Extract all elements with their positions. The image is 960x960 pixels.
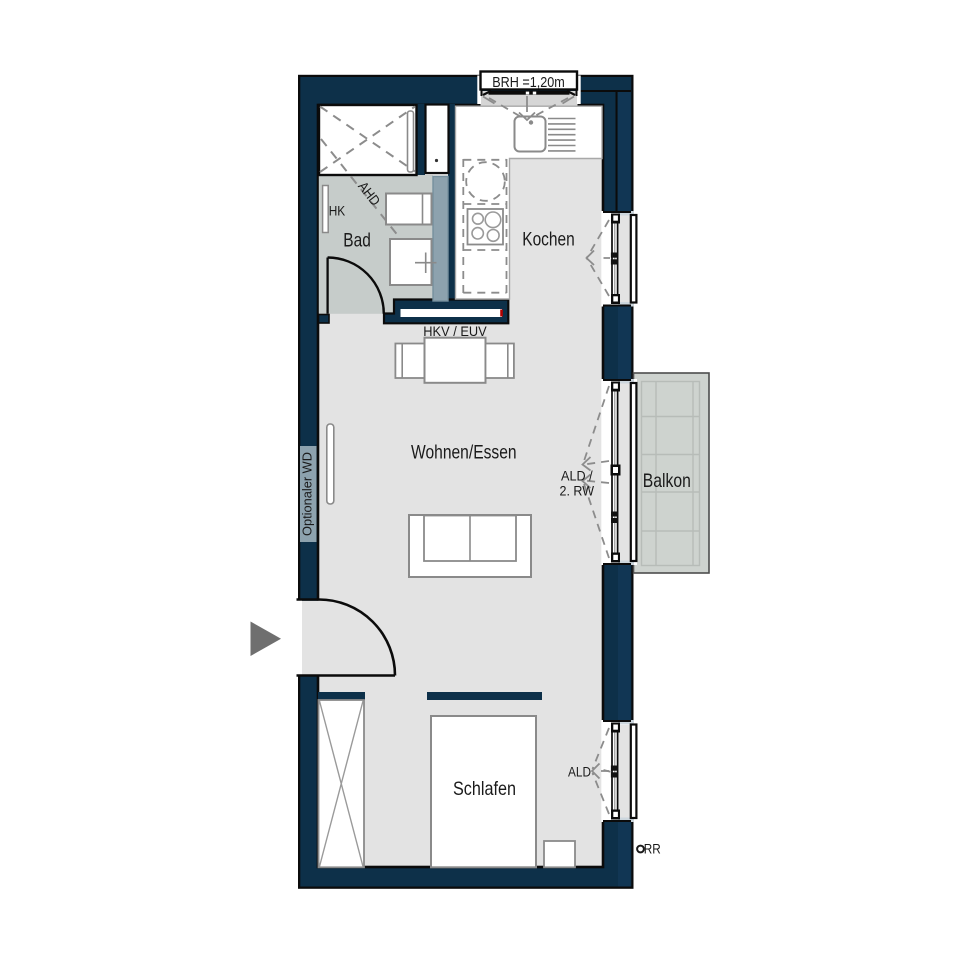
- svg-text:Balkon: Balkon: [643, 470, 691, 492]
- svg-text:HKV / EUV: HKV / EUV: [423, 323, 487, 339]
- svg-text:Schlafen: Schlafen: [453, 778, 516, 800]
- svg-text:Bad: Bad: [343, 229, 371, 251]
- svg-text:ALD /: ALD /: [561, 468, 593, 484]
- svg-text:RR: RR: [644, 841, 661, 857]
- svg-text:ALD: ALD: [568, 764, 591, 780]
- svg-text:Wohnen/Essen: Wohnen/Essen: [411, 441, 517, 463]
- svg-text:Kochen: Kochen: [522, 229, 575, 251]
- svg-text:BRH =1,20m: BRH =1,20m: [492, 74, 565, 91]
- svg-text:Optionaler WD: Optionaler WD: [300, 452, 315, 536]
- svg-text:2. RW: 2. RW: [560, 483, 595, 499]
- svg-text:HK: HK: [329, 203, 346, 219]
